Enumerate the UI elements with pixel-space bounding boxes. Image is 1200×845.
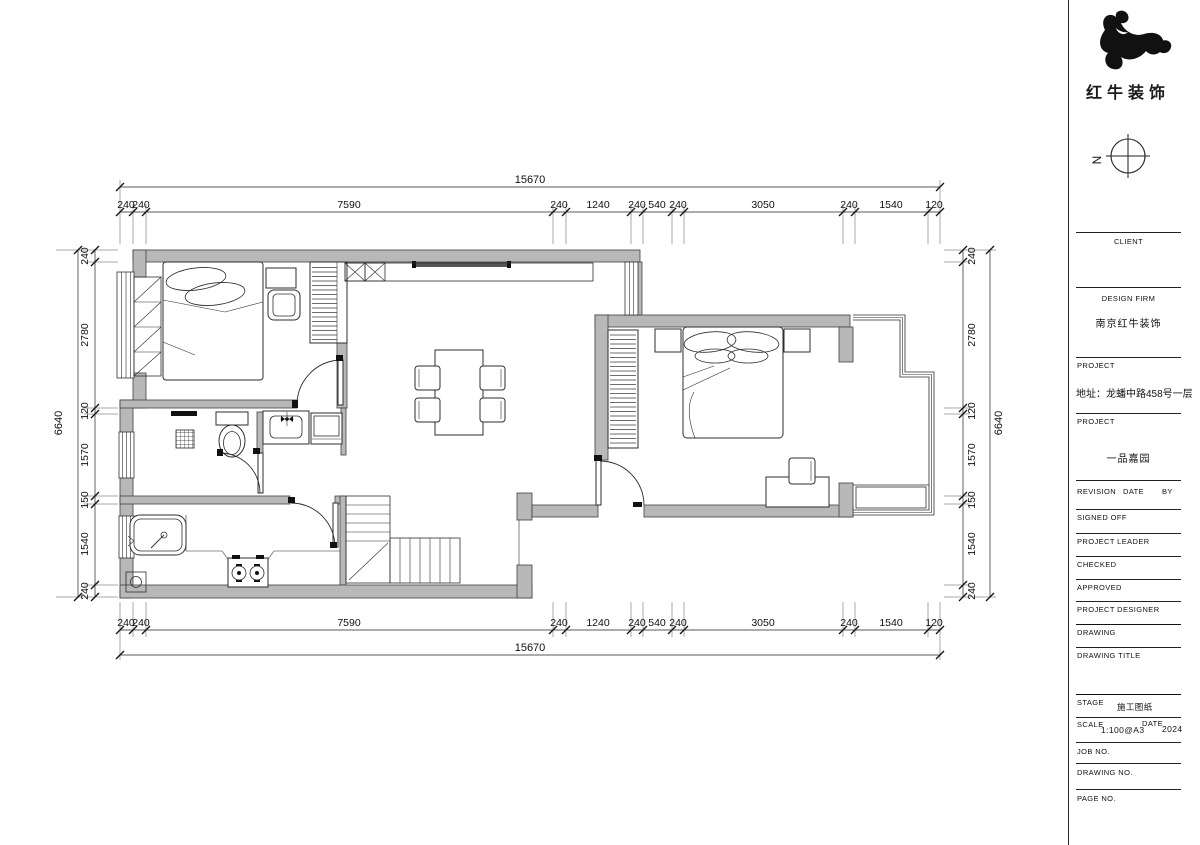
pier-bay-top — [839, 327, 853, 362]
bed-single — [163, 262, 263, 380]
staircase — [346, 496, 460, 583]
scale-value: 1:100@A3 — [1101, 725, 1145, 735]
wardrobe — [310, 262, 347, 343]
titleblock-divider — [1076, 789, 1181, 790]
dimension-label: 3050 — [751, 199, 775, 211]
door-bedroom1 — [292, 355, 343, 408]
titleblock-divider — [1076, 579, 1181, 580]
dimension-label: 240 — [669, 617, 687, 629]
dimension-label: 240 — [132, 617, 150, 629]
page-no-label: PAGE NO. — [1077, 794, 1116, 803]
project-name: 一品嘉园 — [1076, 450, 1181, 465]
dimension-label: 1540 — [79, 532, 91, 556]
dimension-label: 240 — [628, 617, 646, 629]
dimension-label: 1540 — [879, 199, 903, 211]
stage-value: 施工图纸 — [1117, 701, 1153, 713]
faucet — [285, 417, 289, 421]
door-swing-arc — [291, 503, 335, 547]
dimension-top: 15670 240 240 7590 240 1240 240 540 240 … — [116, 174, 944, 244]
vanity-area — [263, 411, 342, 444]
pier-passage-upper — [517, 493, 532, 520]
bed-double — [683, 327, 783, 438]
dimension-label: 7590 — [337, 199, 361, 211]
wardrobe — [608, 330, 638, 448]
title-block: 红牛装饰 N CLIENT DESIGN FIRM 南京红牛装饰 PROJECT… — [1068, 0, 1200, 845]
master-bedroom — [594, 327, 829, 507]
date-value: 2024 — [1162, 724, 1183, 734]
company-name: 红牛装饰 — [1086, 83, 1170, 102]
bedroom-1 — [163, 262, 347, 408]
job-no-label: JOB NO. — [1077, 747, 1110, 756]
dimension-label: 240 — [628, 199, 646, 211]
stair-break-line — [349, 543, 388, 580]
pier-passage-lower — [517, 565, 532, 598]
dimension-label: 1540 — [879, 617, 903, 629]
blueprint-page: 15670 240 240 7590 240 1240 240 540 240 … — [0, 0, 1200, 845]
dimension-left: 6640 240 2780 120 1570 150 1540 240 — [53, 246, 118, 601]
drawing-no-label: DRAWING NO. — [1077, 768, 1133, 777]
nightstand — [655, 329, 681, 352]
dimension-label: 240 — [550, 617, 568, 629]
gas-stove — [222, 551, 274, 587]
dining-chair — [415, 398, 440, 422]
dimension-right: 6640 240 2780 120 1570 150 1540 240 — [944, 246, 1005, 601]
wall-bathroom-south-left — [120, 496, 290, 504]
dimension-label: 1570 — [966, 443, 978, 467]
dimension-label: 120 — [925, 617, 943, 629]
dimension-bottom: 15670 240 240 7590 240 1240 240 540 240 … — [116, 602, 944, 660]
floor-drain — [176, 430, 194, 448]
project-address: 地址：龙蟠中路458号一层 — [1076, 385, 1181, 400]
nightstand — [784, 329, 810, 352]
door-master — [594, 455, 644, 507]
client-label: CLIENT — [1076, 237, 1181, 246]
stage-label: STAGE — [1077, 698, 1104, 707]
dimension-label: 1570 — [79, 443, 91, 467]
window-seat — [856, 487, 926, 508]
washbasin-counter — [263, 411, 309, 444]
door-leaf — [596, 460, 601, 505]
door-leaf — [258, 453, 263, 493]
project-leader-label: PROJECT LEADER — [1077, 537, 1150, 546]
titleblock-divider — [1076, 624, 1181, 625]
approved-label: APPROVED — [1077, 583, 1122, 592]
titleblock-divider — [1076, 717, 1181, 718]
checked-label: CHECKED — [1077, 560, 1116, 569]
dimension-label: 120 — [925, 199, 943, 211]
dimension-label: 120 — [79, 402, 91, 420]
brand-area: 红牛装饰 N — [1069, 6, 1200, 206]
dimension-label: 1540 — [966, 532, 978, 556]
wall-master-west — [595, 315, 608, 460]
bay-window-west — [117, 272, 161, 378]
dimension-label: 3050 — [751, 617, 775, 629]
counter-edge — [186, 515, 340, 551]
north-compass-icon: N — [1090, 134, 1150, 178]
dimension-label: 6640 — [53, 411, 65, 435]
dimension-label: 6640 — [993, 411, 1005, 435]
titleblock-divider — [1076, 232, 1181, 233]
bathroom — [171, 411, 263, 493]
door-leaf — [333, 503, 338, 547]
titleblock-divider — [1076, 413, 1181, 414]
titleblock-divider — [1076, 533, 1181, 534]
nightstand — [266, 268, 296, 288]
wall-bedroom1-south — [120, 400, 297, 408]
design-firm-label: DESIGN FIRM — [1076, 294, 1181, 303]
door-kitchen — [288, 497, 338, 548]
floor-plan-drawing: 15670 240 240 7590 240 1240 240 540 240 … — [0, 0, 1050, 845]
wall-west-bedroom1-upper — [133, 250, 146, 277]
dimension-label: 2780 — [79, 323, 91, 347]
window-sill-north — [412, 261, 511, 268]
dimension-label: 15670 — [515, 642, 546, 654]
dimension-label: 240 — [79, 582, 91, 600]
titleblock-divider — [1076, 287, 1181, 288]
dining-chair — [480, 366, 505, 390]
door-swing-arc — [297, 360, 340, 403]
dimension-label: 120 — [966, 402, 978, 420]
dimension-label: 15670 — [515, 174, 546, 186]
wall-bathroom-divider — [257, 412, 263, 453]
date-label: DATE — [1123, 487, 1144, 496]
pier-bay-bottom — [839, 483, 853, 517]
chair — [268, 290, 300, 320]
bull-logo-icon — [1100, 11, 1171, 70]
titleblock-divider — [1076, 509, 1181, 510]
dimension-label: 2780 — [966, 323, 978, 347]
door-swing-arc — [600, 461, 644, 505]
dining-chair — [415, 366, 440, 390]
dimension-label: 240 — [79, 247, 91, 265]
revision-label: REVISION — [1077, 487, 1116, 496]
wall-stairs-west — [340, 496, 346, 585]
dimension-label: 150 — [79, 491, 91, 509]
design-firm-value: 南京红牛装饰 — [1076, 315, 1181, 330]
titleblock-divider — [1076, 480, 1181, 481]
titleblock-divider — [1076, 647, 1181, 648]
dimension-label: 1240 — [586, 617, 610, 629]
project-designer-label: PROJECT DESIGNER — [1077, 605, 1160, 614]
washing-machine — [311, 413, 342, 444]
dining-chair — [480, 398, 505, 422]
dimension-label: 1240 — [586, 199, 610, 211]
dimension-label: 240 — [840, 199, 858, 211]
dimension-label: 240 — [840, 617, 858, 629]
drawing-label: DRAWING — [1077, 628, 1116, 637]
wall-south-main — [120, 585, 532, 598]
dimension-label: 240 — [966, 247, 978, 265]
compass-letter: N — [1090, 156, 1104, 165]
dimension-label: 150 — [966, 491, 978, 509]
wall-master-north — [595, 315, 850, 327]
dimension-label: 240 — [966, 582, 978, 600]
titleblock-divider — [1076, 763, 1181, 764]
door-swing-arc — [220, 453, 260, 493]
window-bathroom-west — [119, 432, 134, 478]
dimension-label: 7590 — [337, 617, 361, 629]
bay-window-east — [853, 315, 934, 515]
drawing-title-label: DRAWING TITLE — [1077, 651, 1141, 660]
date-label-2: DATE — [1142, 719, 1163, 728]
wall-north — [133, 250, 640, 262]
dining-table — [435, 350, 483, 435]
dimension-label: 540 — [648, 617, 666, 629]
project-label-2: PROJECT — [1077, 417, 1115, 426]
door-leaf — [338, 360, 343, 405]
kitchen — [126, 497, 340, 592]
dimension-label: 540 — [648, 199, 666, 211]
hall-dining — [345, 263, 593, 435]
titleblock-divider — [1076, 694, 1181, 695]
window-hall-east — [625, 262, 638, 315]
titleblock-divider — [1076, 601, 1181, 602]
desk — [766, 458, 829, 507]
kitchen-sink — [128, 515, 186, 555]
signed-off-label: SIGNED OFF — [1077, 513, 1127, 522]
dimension-label: 240 — [550, 199, 568, 211]
titleblock-divider — [1076, 357, 1181, 358]
by-label: BY — [1162, 487, 1173, 496]
shower-threshold — [171, 411, 197, 416]
dimension-label: 240 — [132, 199, 150, 211]
dimension-label: 240 — [669, 199, 687, 211]
scale-label: SCALE — [1077, 720, 1104, 729]
project-label: PROJECT — [1077, 361, 1115, 370]
titleblock-divider — [1076, 556, 1181, 557]
wall-master-south-left — [532, 505, 598, 517]
door-bathroom — [217, 448, 263, 493]
titleblock-divider — [1076, 742, 1181, 743]
